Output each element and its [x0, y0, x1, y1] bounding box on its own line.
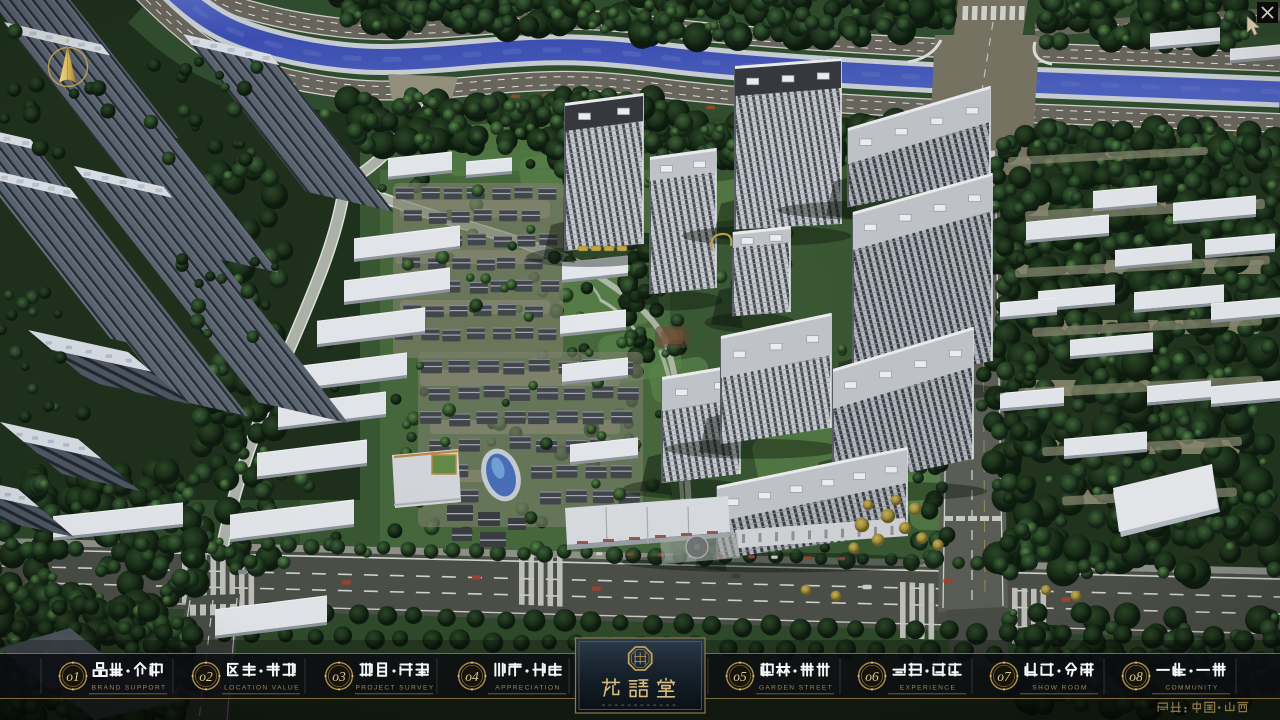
svg-text:PROJECT SURVEY: PROJECT SURVEY — [355, 685, 434, 692]
svg-text:COMMUNITY: COMMUNITY — [1165, 685, 1218, 692]
svg-text:EXPERIENCE: EXPERIENCE — [900, 685, 957, 692]
svg-text:GARDEN STREET: GARDEN STREET — [759, 685, 833, 692]
svg-text:o3: o3 — [332, 669, 346, 684]
svg-text:LOCATION VALUE: LOCATION VALUE — [224, 685, 300, 692]
svg-text:o4: o4 — [465, 669, 479, 684]
svg-text:APPRECIATION: APPRECIATION — [495, 685, 560, 692]
svg-text:o5: o5 — [733, 669, 747, 684]
svg-text:o7: o7 — [997, 669, 1012, 684]
svg-text:o8: o8 — [1129, 669, 1143, 684]
svg-text:SHOW ROOM: SHOW ROOM — [1032, 685, 1087, 692]
svg-text:o6: o6 — [865, 669, 879, 684]
svg-text:o2: o2 — [199, 669, 213, 684]
svg-text:BRAND SUPPORT: BRAND SUPPORT — [92, 685, 167, 692]
svg-text:o1: o1 — [66, 669, 80, 684]
